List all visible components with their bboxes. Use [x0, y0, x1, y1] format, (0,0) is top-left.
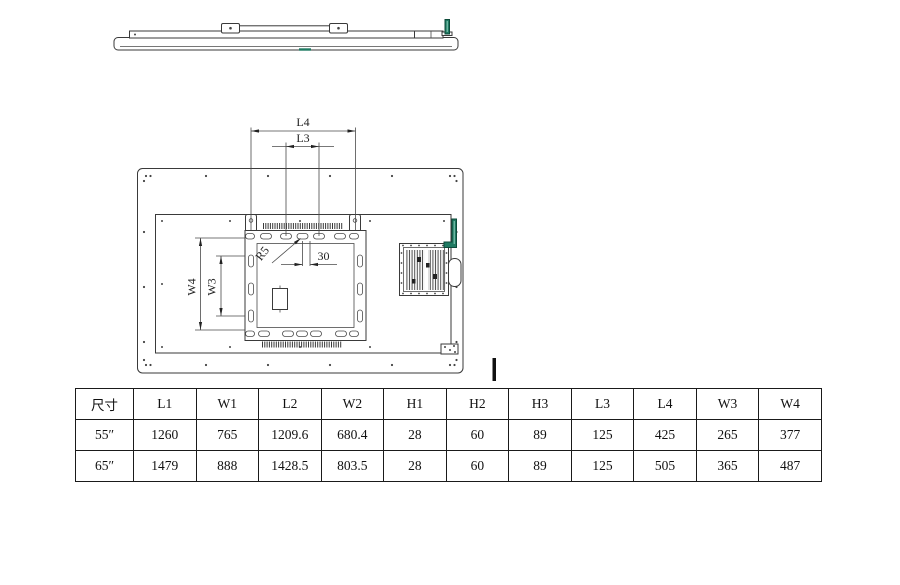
- table-cell: 28: [384, 451, 447, 482]
- screw-dot: [134, 34, 136, 36]
- table-cell: 505: [634, 451, 697, 482]
- page: L4 L3 W4 W3 R5 30: [0, 0, 900, 585]
- table-header-cell: W3: [696, 389, 759, 420]
- table-row-55: 55″ 1260 765 1209.6 680.4 28 60 89 125 4…: [76, 420, 822, 451]
- dim-label-30: 30: [318, 249, 330, 263]
- side-view-back-layer: [130, 31, 444, 38]
- table-header-cell: H1: [384, 389, 447, 420]
- screw-dot: [337, 27, 340, 30]
- bracket-plate: [415, 31, 444, 38]
- table-cell: 1260: [134, 420, 197, 451]
- side-view: [114, 20, 458, 51]
- table-cell: 1428.5: [259, 451, 322, 482]
- table-cell: 680.4: [321, 420, 384, 451]
- table-cell: 125: [571, 420, 634, 451]
- mount-tab-right: [350, 215, 361, 232]
- tab-hole: [353, 219, 357, 223]
- cursor-mark: [493, 358, 497, 381]
- grille-handle: [449, 259, 462, 287]
- dim-label-l4: L4: [296, 115, 309, 129]
- vesa-mount-plate: [245, 215, 366, 345]
- table-cell: 1209.6: [259, 420, 322, 451]
- table-header-cell: L2: [259, 389, 322, 420]
- table-cell: 65″: [76, 451, 134, 482]
- side-view-body: [114, 38, 458, 51]
- table-header-row: 尺寸 L1 W1 L2 W2 H1 H2 H3 L3 L4 W3 W4: [76, 389, 822, 420]
- table-cell: 60: [446, 420, 509, 451]
- technical-drawing: L4 L3 W4 W3 R5 30: [0, 0, 900, 385]
- spec-table: 尺寸 L1 W1 L2 W2 H1 H2 H3 L3 L4 W3 W4 55″ …: [75, 388, 822, 482]
- green-accent-dash: [299, 48, 311, 50]
- table-cell: 28: [384, 420, 447, 451]
- bottom-right-junction: [441, 344, 458, 354]
- table-header-cell: L1: [134, 389, 197, 420]
- table-cell: 365: [696, 451, 759, 482]
- grille-vent-slats-right: [428, 250, 446, 290]
- table-cell: 765: [196, 420, 259, 451]
- table-cell: 803.5: [321, 451, 384, 482]
- table-cell: 377: [759, 420, 822, 451]
- table-header-cell: L4: [634, 389, 697, 420]
- table-cell: 89: [509, 451, 572, 482]
- center-label-plate: [273, 286, 288, 313]
- table-cell: 425: [634, 420, 697, 451]
- dim-label-w4: W4: [185, 278, 199, 295]
- table-header-cell: H3: [509, 389, 572, 420]
- table-cell: 55″: [76, 420, 134, 451]
- table-header-cell: H2: [446, 389, 509, 420]
- grille-vent-slats-left: [406, 250, 425, 290]
- table-cell: 125: [571, 451, 634, 482]
- dim-label-l3: L3: [296, 131, 309, 145]
- dim-label-w3: W3: [205, 278, 219, 295]
- side-view-right-bracket: [415, 20, 453, 39]
- table-cell: 89: [509, 420, 572, 451]
- plate-bottom-slots: [246, 331, 359, 337]
- table-header-cell: 尺寸: [76, 389, 134, 420]
- table-header-cell: L3: [571, 389, 634, 420]
- table-header-cell: W2: [321, 389, 384, 420]
- table-header-cell: W4: [759, 389, 822, 420]
- table-cell: 487: [759, 451, 822, 482]
- screw-dot: [229, 27, 232, 30]
- table-row-65: 65″ 1479 888 1428.5 803.5 28 60 89 125 5…: [76, 451, 822, 482]
- table-cell: 888: [196, 451, 259, 482]
- table-cell: 265: [696, 420, 759, 451]
- rail-bar: [240, 26, 330, 31]
- table-cell: 60: [446, 451, 509, 482]
- table-header-cell: W1: [196, 389, 259, 420]
- table-cell: 1479: [134, 451, 197, 482]
